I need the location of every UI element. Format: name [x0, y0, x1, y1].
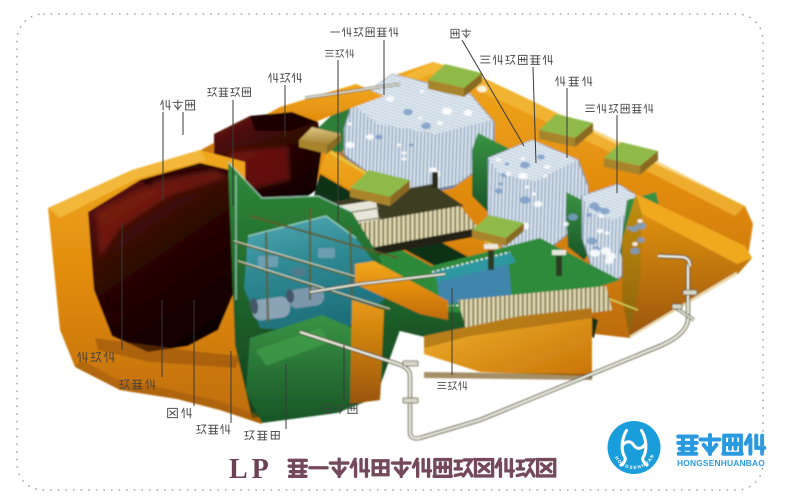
svg-text:HONGSENHUANBAO: HONGSENHUANBAO	[677, 458, 765, 468]
svg-text:LP: LP	[229, 454, 273, 485]
